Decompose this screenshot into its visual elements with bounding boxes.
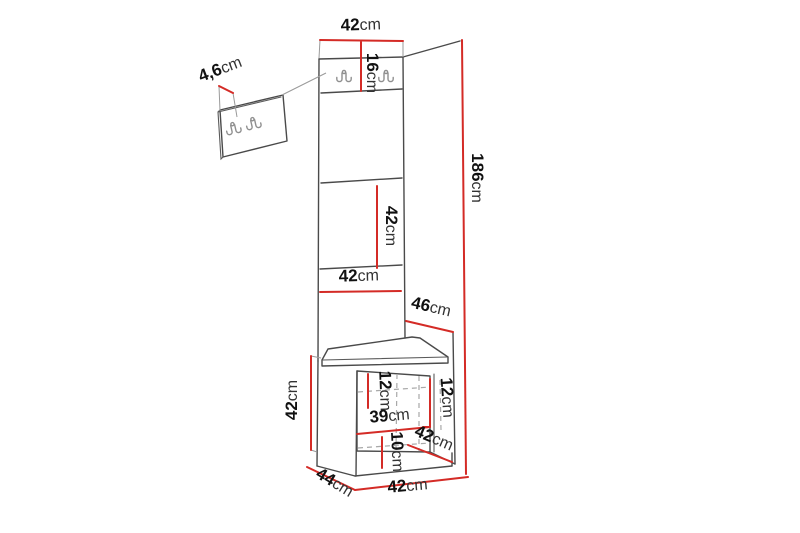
dim-total-height bbox=[462, 40, 466, 474]
dim-cabinet-height bbox=[311, 356, 321, 452]
label-middle-panel-height: 42cm bbox=[382, 206, 401, 246]
label-cabinet-depth: 44cm bbox=[313, 464, 357, 501]
dim-upper-depth bbox=[406, 321, 453, 332]
coat-hook-icon bbox=[245, 116, 262, 130]
label-lower-panel-width: 42cm bbox=[338, 265, 379, 285]
dimension-labels: 42cm 16cm 4,6cm 42cm 42cm 46cm 186cm 42c… bbox=[196, 14, 487, 500]
product-dimension-diagram: 42cm 16cm 4,6cm 42cm 42cm 46cm 186cm 42c… bbox=[0, 0, 800, 533]
label-cabinet-width: 42cm bbox=[387, 474, 429, 496]
label-top-width: 42cm bbox=[340, 14, 381, 34]
label-inner-top-right: 12cm bbox=[437, 377, 459, 418]
label-hook-panel-height: 16cm bbox=[363, 53, 382, 93]
coat-hook-icon bbox=[225, 121, 242, 135]
dim-wall-panel-thickness bbox=[219, 86, 237, 117]
dim-lower-panel-width bbox=[320, 291, 401, 292]
label-inner-top-left: 12cm bbox=[375, 370, 395, 411]
diagram-canvas: 42cm 16cm 4,6cm 42cm 42cm 46cm 186cm 42c… bbox=[0, 0, 800, 533]
label-inner-bottom: 10cm bbox=[387, 431, 408, 472]
dimension-lines bbox=[219, 40, 468, 490]
label-wall-panel-thickness: 4,6cm bbox=[196, 52, 245, 86]
label-inner-width: 39cm bbox=[369, 404, 411, 426]
dim-inner-top-right bbox=[423, 379, 430, 427]
seat-cushion bbox=[322, 337, 448, 366]
label-total-height: 186cm bbox=[468, 153, 487, 203]
label-upper-depth: 46cm bbox=[409, 293, 452, 321]
label-cabinet-height: 42cm bbox=[282, 380, 301, 420]
coat-hook-icon bbox=[337, 70, 351, 81]
wall-panel-detail bbox=[218, 73, 326, 159]
